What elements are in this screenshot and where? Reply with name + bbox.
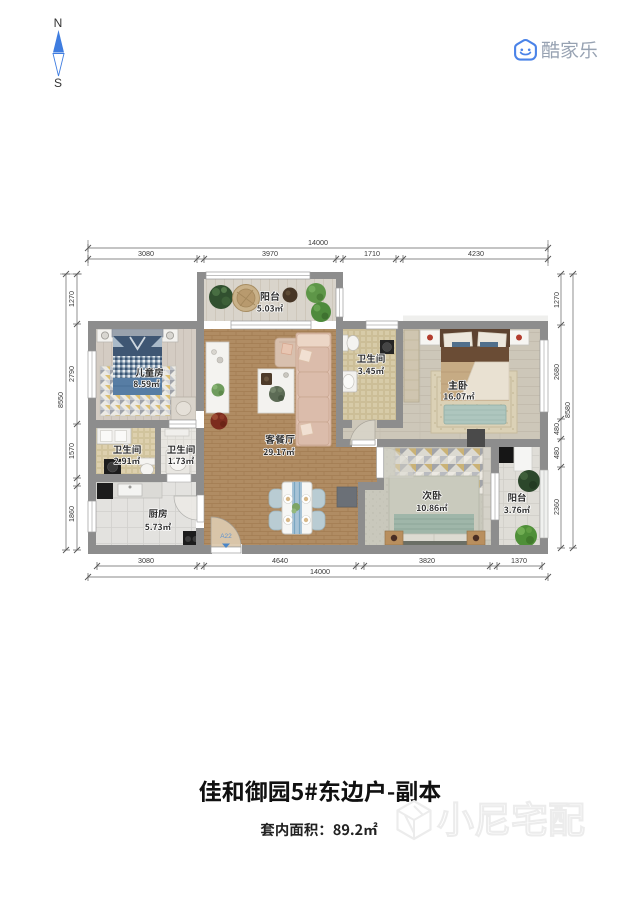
svg-text:2680: 2680 — [552, 364, 561, 380]
svg-text:3970: 3970 — [262, 249, 278, 258]
svg-text:480: 480 — [552, 447, 561, 459]
svg-text:1270: 1270 — [67, 291, 76, 307]
svg-text:1860: 1860 — [67, 506, 76, 522]
svg-text:8580: 8580 — [563, 402, 572, 418]
svg-text:4230: 4230 — [468, 249, 484, 258]
svg-text:1710: 1710 — [364, 249, 380, 258]
svg-text:4640: 4640 — [272, 556, 288, 565]
svg-text:8550: 8550 — [56, 392, 65, 408]
svg-text:2790: 2790 — [67, 366, 76, 382]
svg-text:480: 480 — [552, 423, 561, 435]
svg-text:1370: 1370 — [511, 556, 527, 565]
svg-text:2360: 2360 — [552, 499, 561, 515]
svg-text:1570: 1570 — [67, 443, 76, 459]
svg-text:14000: 14000 — [308, 238, 328, 247]
svg-text:3080: 3080 — [138, 249, 154, 258]
svg-text:S: S — [54, 76, 62, 90]
svg-text:14000: 14000 — [310, 567, 330, 576]
svg-text:1270: 1270 — [552, 292, 561, 308]
svg-text:A22: A22 — [220, 533, 232, 540]
svg-text:3820: 3820 — [419, 556, 435, 565]
svg-text:N: N — [54, 16, 63, 30]
svg-text:3080: 3080 — [138, 556, 154, 565]
